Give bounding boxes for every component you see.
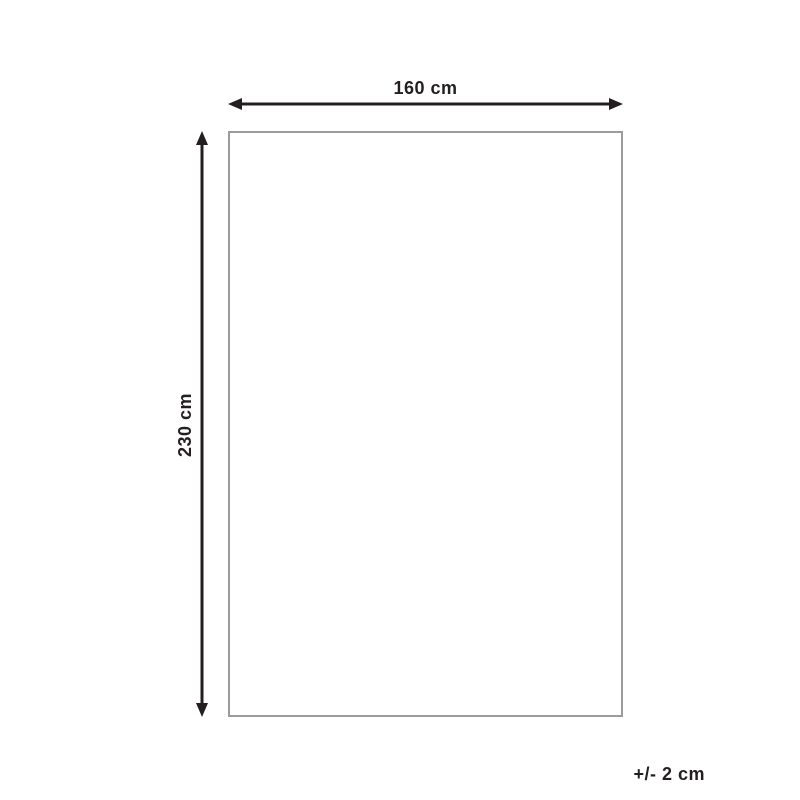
- height-dimension-label: 230 cm: [174, 375, 196, 475]
- vertical-dimension-arrow-icon: [194, 131, 210, 717]
- tolerance-label: +/- 2 cm: [560, 764, 705, 785]
- dimension-diagram: 160 cm 230 cm +/- 2 cm: [0, 0, 800, 800]
- horizontal-dimension-arrow-icon: [228, 96, 623, 112]
- product-outline-rectangle: [228, 131, 623, 717]
